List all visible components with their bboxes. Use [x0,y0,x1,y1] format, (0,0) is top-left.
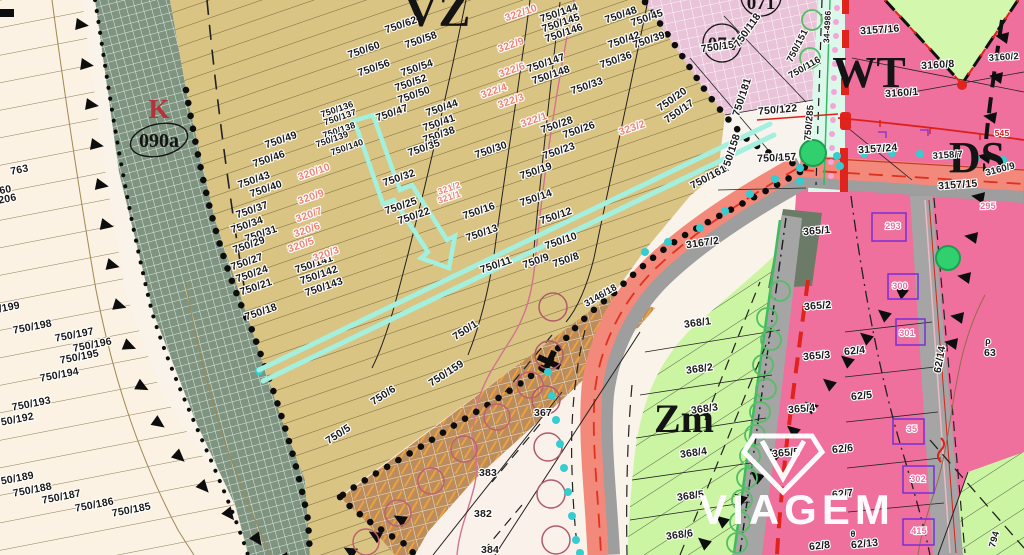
parcel-label: 750/157 [757,151,797,165]
parcel-label: 384 [481,544,499,555]
edge-mark [0,9,14,17]
parcel-label: 3160/2 [988,51,1019,64]
network-dot-icon [796,164,804,172]
watermark-text: VIAGEM [699,486,895,533]
parcel-label: 365/4 [788,402,816,416]
network-dot-icon [721,207,729,215]
network-dot-icon [572,536,580,544]
parcel-label: 300 [892,281,908,291]
network-dot-icon [548,392,556,400]
pink-dot-icon [834,5,840,11]
parcel-label: 301 [899,328,915,338]
pink-dot-icon [829,131,835,137]
tree-filled-icon [800,140,826,166]
parcel-label: 295 [980,201,996,211]
pink-dot-icon [828,173,834,179]
parcel-label: 365/2 [804,299,832,313]
parcel-label: 383 [479,467,497,479]
zoning-map-canvas[interactable]: VZ K 090a 074 071 WT DS Zm 750/62750/607… [0,0,1024,555]
network-dot-icon [564,488,572,496]
zone-label-071: 071 [747,0,776,14]
map-viewport[interactable]: VZ K 090a 074 071 WT DS Zm 750/62750/607… [0,0,1024,555]
parcel-label: 62/5 [850,389,872,403]
pink-dot-icon [833,19,839,25]
parcel-label: 63 [984,347,996,359]
network-dot-icon [796,177,804,185]
parcel-label: 62/8 [808,539,830,553]
network-dot-icon [771,175,779,183]
parcel-label: 302 [910,474,926,484]
parcel-label: 62/6 [831,442,853,456]
parcel-label: 35 [907,424,917,434]
parcel-label: ρ [985,336,991,346]
parcel-label: 382 [474,508,492,520]
network-dot-icon [552,416,560,424]
zone-label-k: K [148,94,169,124]
parcel-label: 3160/8 [921,58,955,72]
network-dot-icon [836,162,844,170]
parcel-label: 367 [534,407,552,419]
network-dot-icon [833,152,841,160]
network-dot-icon [641,248,649,256]
red-node [957,80,967,90]
parcel-label: 34-4986 [821,10,833,43]
parcel-label: 545 [995,128,1010,138]
pink-dot-icon [828,159,834,165]
parcel-label: 293 [885,221,901,231]
parcel-label: 365/1 [803,224,831,238]
pink-dot-icon [829,145,835,151]
parcel-label: 3160/1 [885,86,919,100]
network-dot-icon [544,368,552,376]
network-dot-icon [664,238,672,246]
network-dot-icon [560,464,568,472]
pink-dot-icon [833,33,839,39]
pink-dot-icon [830,103,836,109]
tree-filled-icon [936,246,960,270]
parcel-label: 62/4 [843,344,865,358]
network-dot-icon [568,512,576,520]
parcel-label: 415 [911,526,927,536]
parcel-label: 365/3 [803,349,831,363]
network-dot-icon [696,224,704,232]
zone-label-k-code: 090a [139,130,179,152]
network-dot-icon [556,440,564,448]
pink-dot-icon [830,117,836,123]
parcel-label: 3158/7 [932,149,963,162]
network-dot-icon [916,150,924,158]
network-dot-icon [746,190,754,198]
